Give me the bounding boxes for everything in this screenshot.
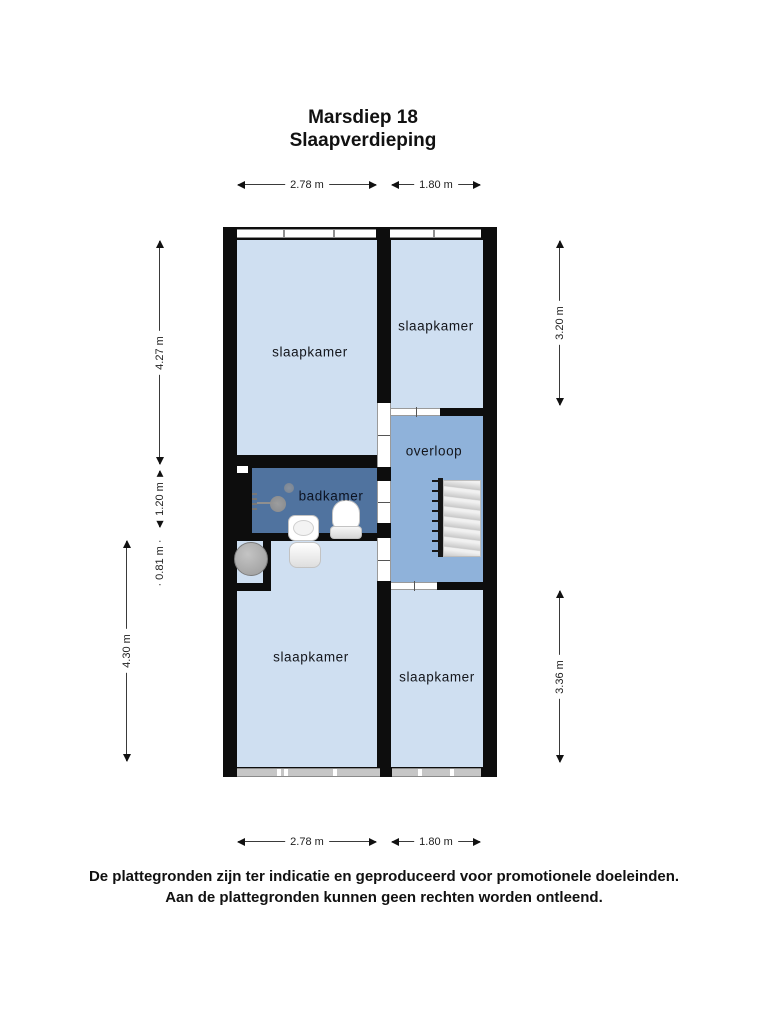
label-slaapkamer-bottom-right: slaapkamer [399,670,475,685]
disclaimer-line-1: De plattegronden zijn ter indicatie en g… [0,866,768,887]
plan-title: Marsdiep 18 Slaapverdieping [193,106,533,152]
dimension-bottom-width-right: 1.80 m [391,837,481,847]
label-slaapkamer-top-right: slaapkamer [398,319,474,334]
dimension-left-120: 1.20 m [155,470,165,528]
door-top-left-bedroom [377,403,391,467]
dimension-right-336: 3.36 m [555,590,565,763]
door-top-right-bedroom [391,408,440,416]
washbasin-icon [289,542,321,568]
stairs-stringer-icon [438,478,443,557]
dimension-left-427: 4.27 m [155,240,165,465]
wall-partition-bottom [377,590,391,777]
label-slaapkamer-top-left: slaapkamer [272,345,348,360]
dimension-top-width-left: 2.78 m [237,180,377,190]
toilet-tank-icon [330,526,362,539]
plan-title-address: Marsdiep 18 [193,106,533,129]
plan-title-floor: Slaapverdieping [193,129,533,152]
dimension-left-430: 4.30 m [122,540,132,762]
dimension-bottom-width-left: 2.78 m [237,837,377,847]
wall-partition-top [377,227,391,403]
door-badkamer [377,481,391,523]
dimension-left-081: 0.81 m [155,535,165,590]
wall-corridor-pier-1 [377,467,391,481]
door-bottom-right-bedroom [391,582,437,590]
disclaimer: De plattegronden zijn ter indicatie en g… [0,866,768,908]
window-top-right [390,229,481,238]
wall-overloop-bottom [437,582,483,590]
label-overloop: overloop [406,444,463,459]
wall-joint-notch [237,466,248,473]
wall-badkamer-left [237,468,252,541]
label-slaapkamer-bottom-left: slaapkamer [273,650,349,665]
wall-left [223,227,237,777]
sink-icon [288,515,319,541]
shower-head-small-icon [284,483,294,493]
door-bottom-left-bedroom [377,538,391,581]
wall-corridor-pier-3 [377,581,391,590]
dimension-right-320: 3.20 m [555,240,565,406]
wall-right [483,227,497,777]
boiler-icon [234,542,268,576]
dimension-top-width-right: 1.80 m [391,180,481,190]
window-top-left [237,229,376,238]
stairs-icon [443,480,481,557]
wall-corridor-pier-2 [377,523,391,538]
shower-head-icon [270,496,286,512]
window-bottom-right [392,768,481,777]
wall-topright-bedroom-bottom [440,408,483,416]
label-badkamer: badkamer [299,489,364,504]
wall-alcove-bottom [223,583,271,591]
window-bottom-left [237,768,380,777]
floor-plan: slaapkamer slaapkamer overloop badkamer … [223,227,497,777]
disclaimer-line-2: Aan de plattegronden kunnen geen rechten… [0,887,768,908]
